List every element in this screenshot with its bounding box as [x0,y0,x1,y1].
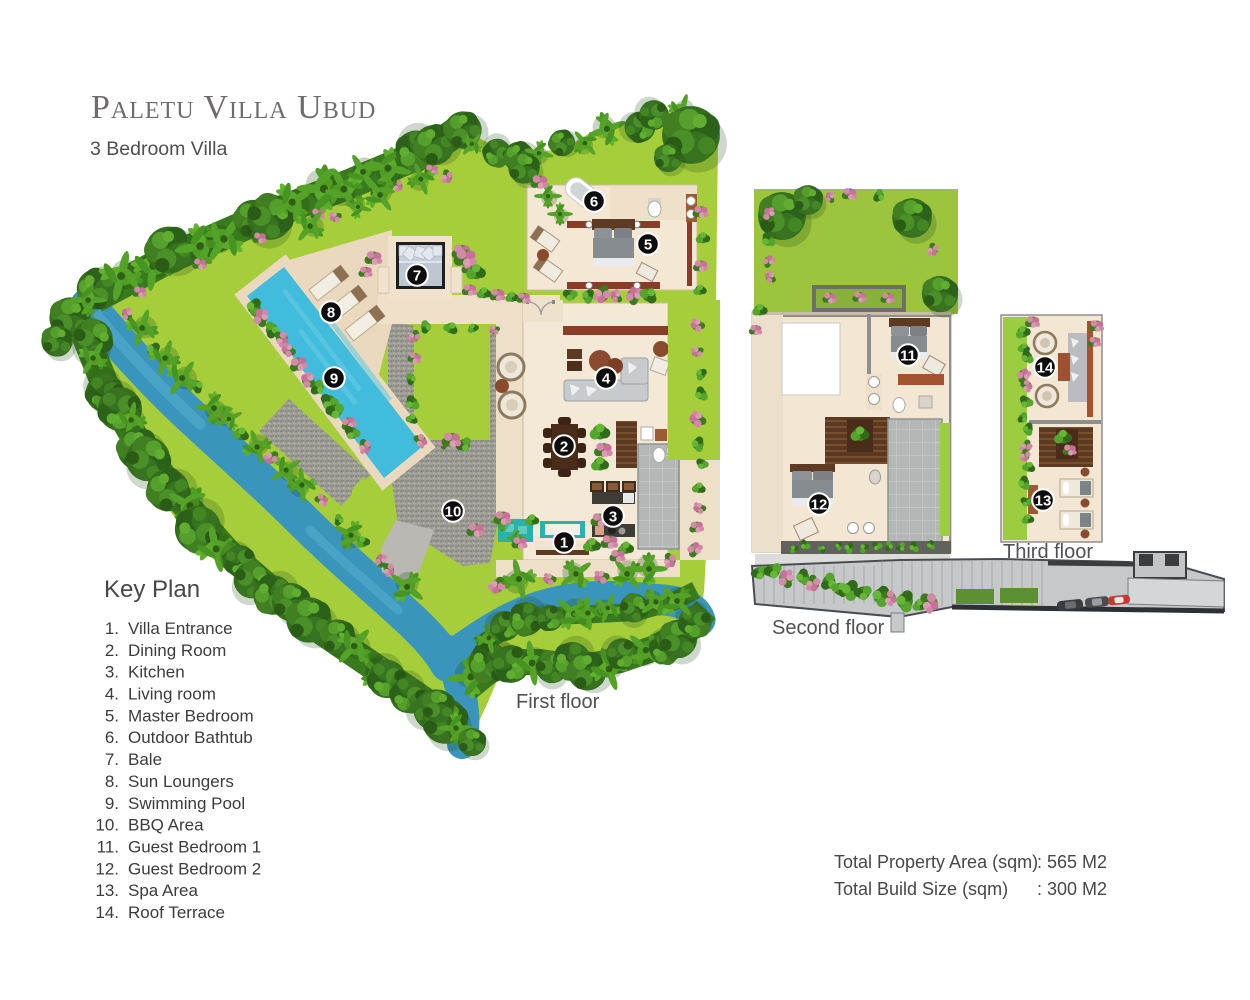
svg-text:2.: 2. [105,641,119,660]
svg-text:Swimming Pool: Swimming Pool [128,794,245,813]
svg-text:Paletu Villa Ubud: Paletu Villa Ubud [91,89,376,126]
svg-text:Spa Area: Spa Area [128,881,198,900]
svg-text:14: 14 [1037,360,1054,377]
svg-text:Villa Entrance: Villa Entrance [128,619,233,638]
svg-text:13: 13 [1035,493,1052,510]
svg-text:1: 1 [560,535,568,552]
svg-text:6: 6 [590,194,598,211]
svg-text:12: 12 [811,497,828,514]
svg-text:5.: 5. [105,706,119,725]
svg-text:2: 2 [560,439,568,456]
svg-text:3.: 3. [105,663,119,682]
svg-text:8: 8 [327,305,335,322]
svg-text:BBQ Area: BBQ Area [128,816,204,835]
svg-text:Outdoor Bathtub: Outdoor Bathtub [128,728,253,747]
svg-text:11.: 11. [97,838,119,857]
svg-text:4.: 4. [105,685,119,704]
svg-text:5: 5 [644,237,652,254]
svg-text:3 Bedroom Villa: 3 Bedroom Villa [90,138,227,160]
svg-text:Dining Room: Dining Room [128,641,226,660]
svg-text:Master Bedroom: Master Bedroom [128,706,254,725]
svg-text:14.: 14. [95,903,119,922]
svg-text:Third floor: Third floor [1003,541,1093,563]
svg-text:Sun Loungers: Sun Loungers [128,772,234,791]
svg-text:6.: 6. [105,728,119,747]
svg-text:4: 4 [602,371,611,388]
svg-text:Kitchen: Kitchen [128,663,185,682]
svg-text:10.: 10. [95,816,119,835]
svg-text:9.: 9. [105,794,119,813]
svg-text:10: 10 [445,504,462,521]
svg-text:Total Property Area (sqm): 565: Total Property Area (sqm): 565 M2 [834,852,1107,872]
svg-text:Guest Bedroom 1: Guest Bedroom 1 [128,838,261,857]
svg-text:11: 11 [900,348,916,365]
svg-text:Bale: Bale [128,750,162,769]
svg-text:7: 7 [413,268,421,285]
svg-text:13.: 13. [95,881,119,900]
svg-text:3: 3 [609,509,617,526]
svg-text:Roof Terrace: Roof Terrace [128,903,225,922]
svg-text:Living room: Living room [128,685,216,704]
svg-text:9: 9 [330,371,338,388]
svg-text:First floor: First floor [516,691,600,713]
svg-text:7.: 7. [105,750,119,769]
svg-text:Second floor: Second floor [772,617,885,639]
svg-text:Guest Bedroom 2: Guest Bedroom 2 [128,859,261,878]
svg-text:Key Plan: Key Plan [104,576,200,603]
svg-text:Total Build Size (sqm): 300 M2: Total Build Size (sqm): 300 M2 [834,879,1107,899]
svg-text:8.: 8. [105,772,119,791]
svg-text:12.: 12. [95,859,119,878]
svg-text:1.: 1. [105,619,119,638]
